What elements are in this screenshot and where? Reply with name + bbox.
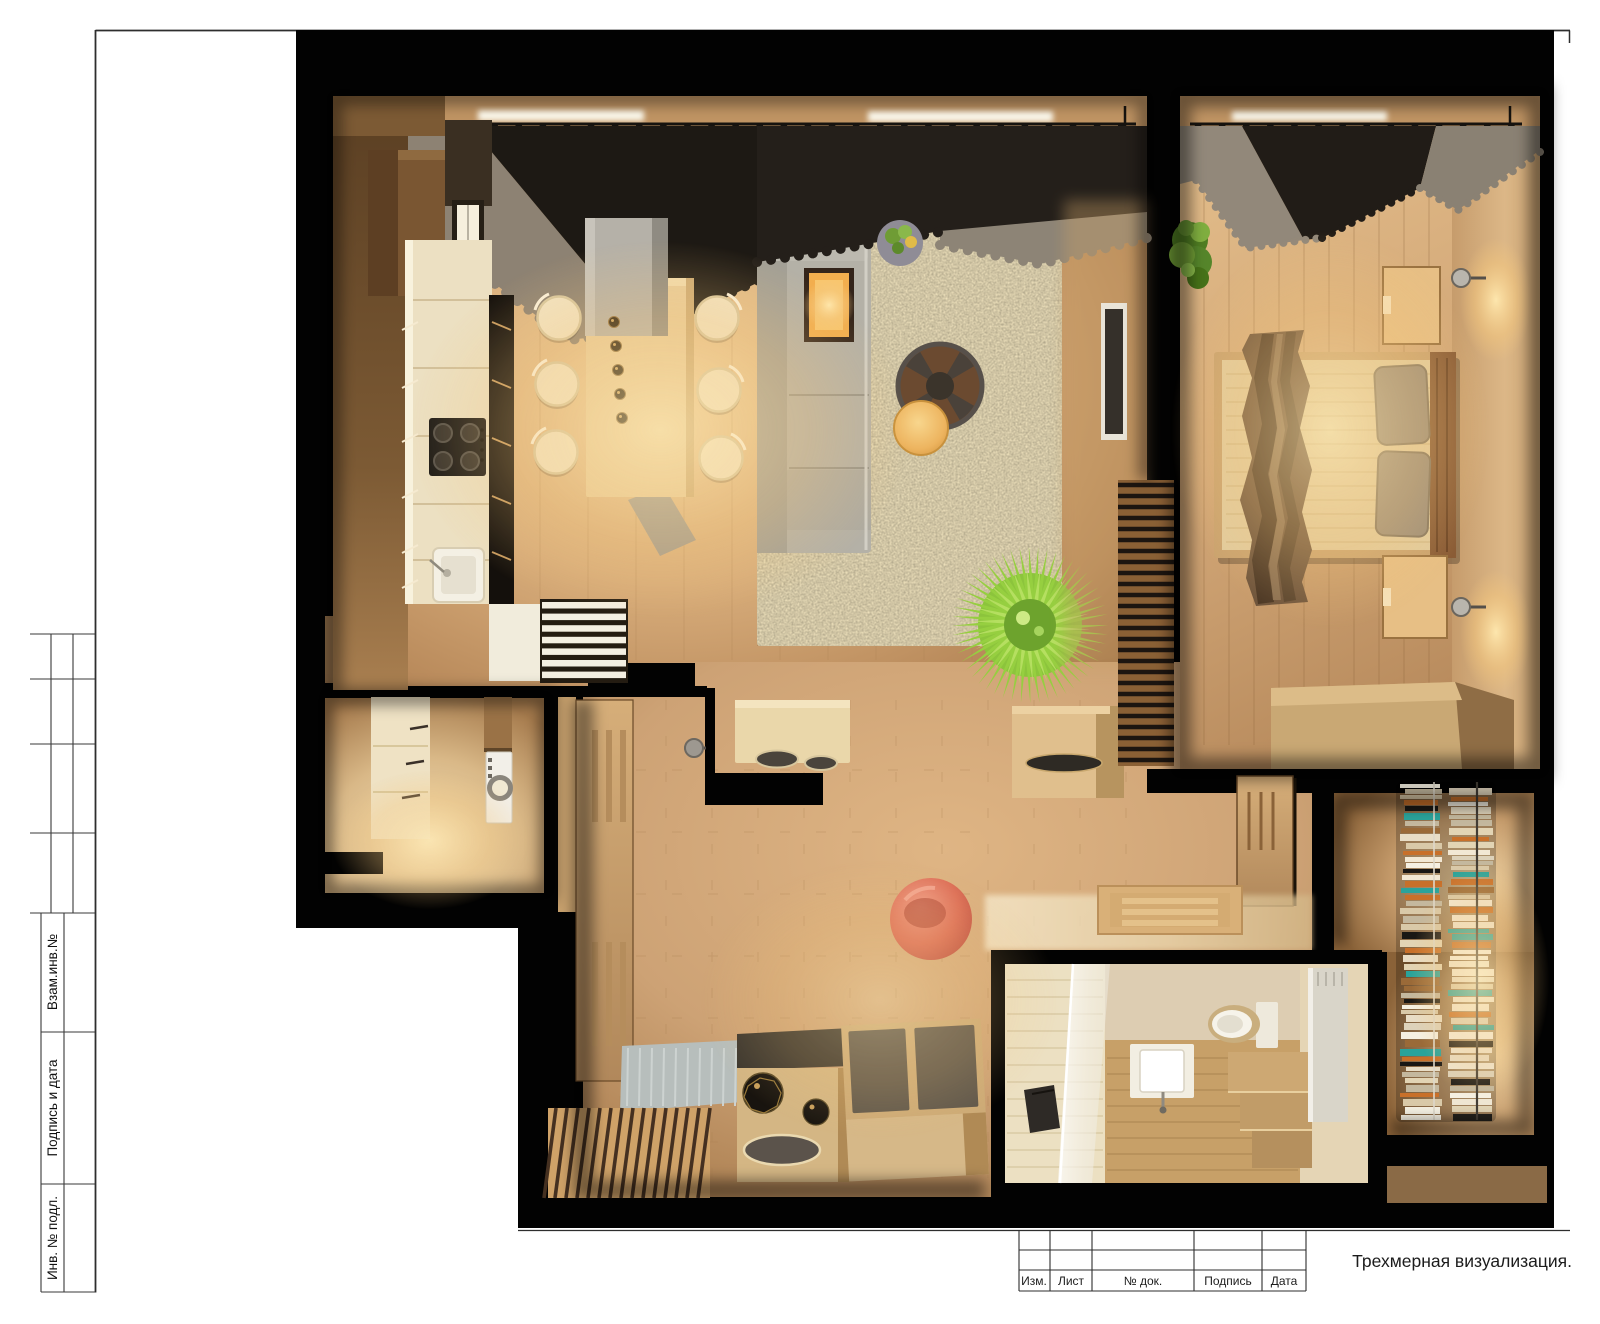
svg-text:Лист: Лист (1058, 1274, 1085, 1288)
svg-text:Взам.инв.№: Взам.инв.№ (45, 934, 60, 1010)
svg-text:Дата: Дата (1271, 1274, 1298, 1288)
svg-text:Изм.: Изм. (1021, 1274, 1047, 1288)
svg-text:Трехмерная визуализация.: Трехмерная визуализация. (1352, 1251, 1572, 1271)
svg-text:Подпись и дата: Подпись и дата (45, 1059, 60, 1157)
svg-text:№ док.: № док. (1124, 1274, 1162, 1288)
svg-text:Инв. № подл.: Инв. № подл. (45, 1196, 60, 1280)
svg-text:Подпись: Подпись (1204, 1274, 1252, 1288)
